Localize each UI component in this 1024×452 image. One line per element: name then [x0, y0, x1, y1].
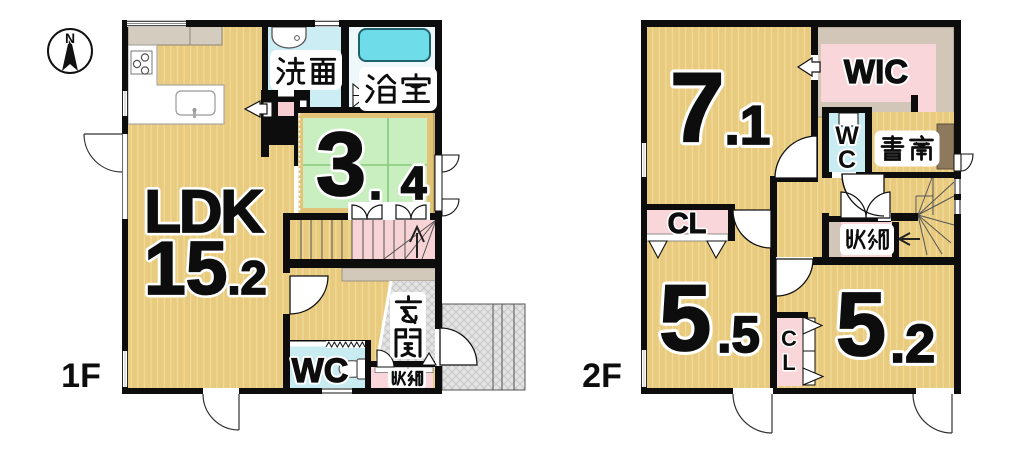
- svg-text:C: C: [781, 326, 797, 351]
- svg-text:WC: WC: [292, 352, 349, 390]
- svg-text:C: C: [838, 146, 856, 174]
- svg-text:CL: CL: [668, 208, 707, 240]
- svg-text:1F: 1F: [61, 357, 101, 395]
- svg-text:WIC: WIC: [844, 53, 908, 90]
- svg-text:L: L: [782, 350, 795, 375]
- svg-text:2F: 2F: [582, 357, 622, 395]
- svg-text:N: N: [65, 30, 75, 46]
